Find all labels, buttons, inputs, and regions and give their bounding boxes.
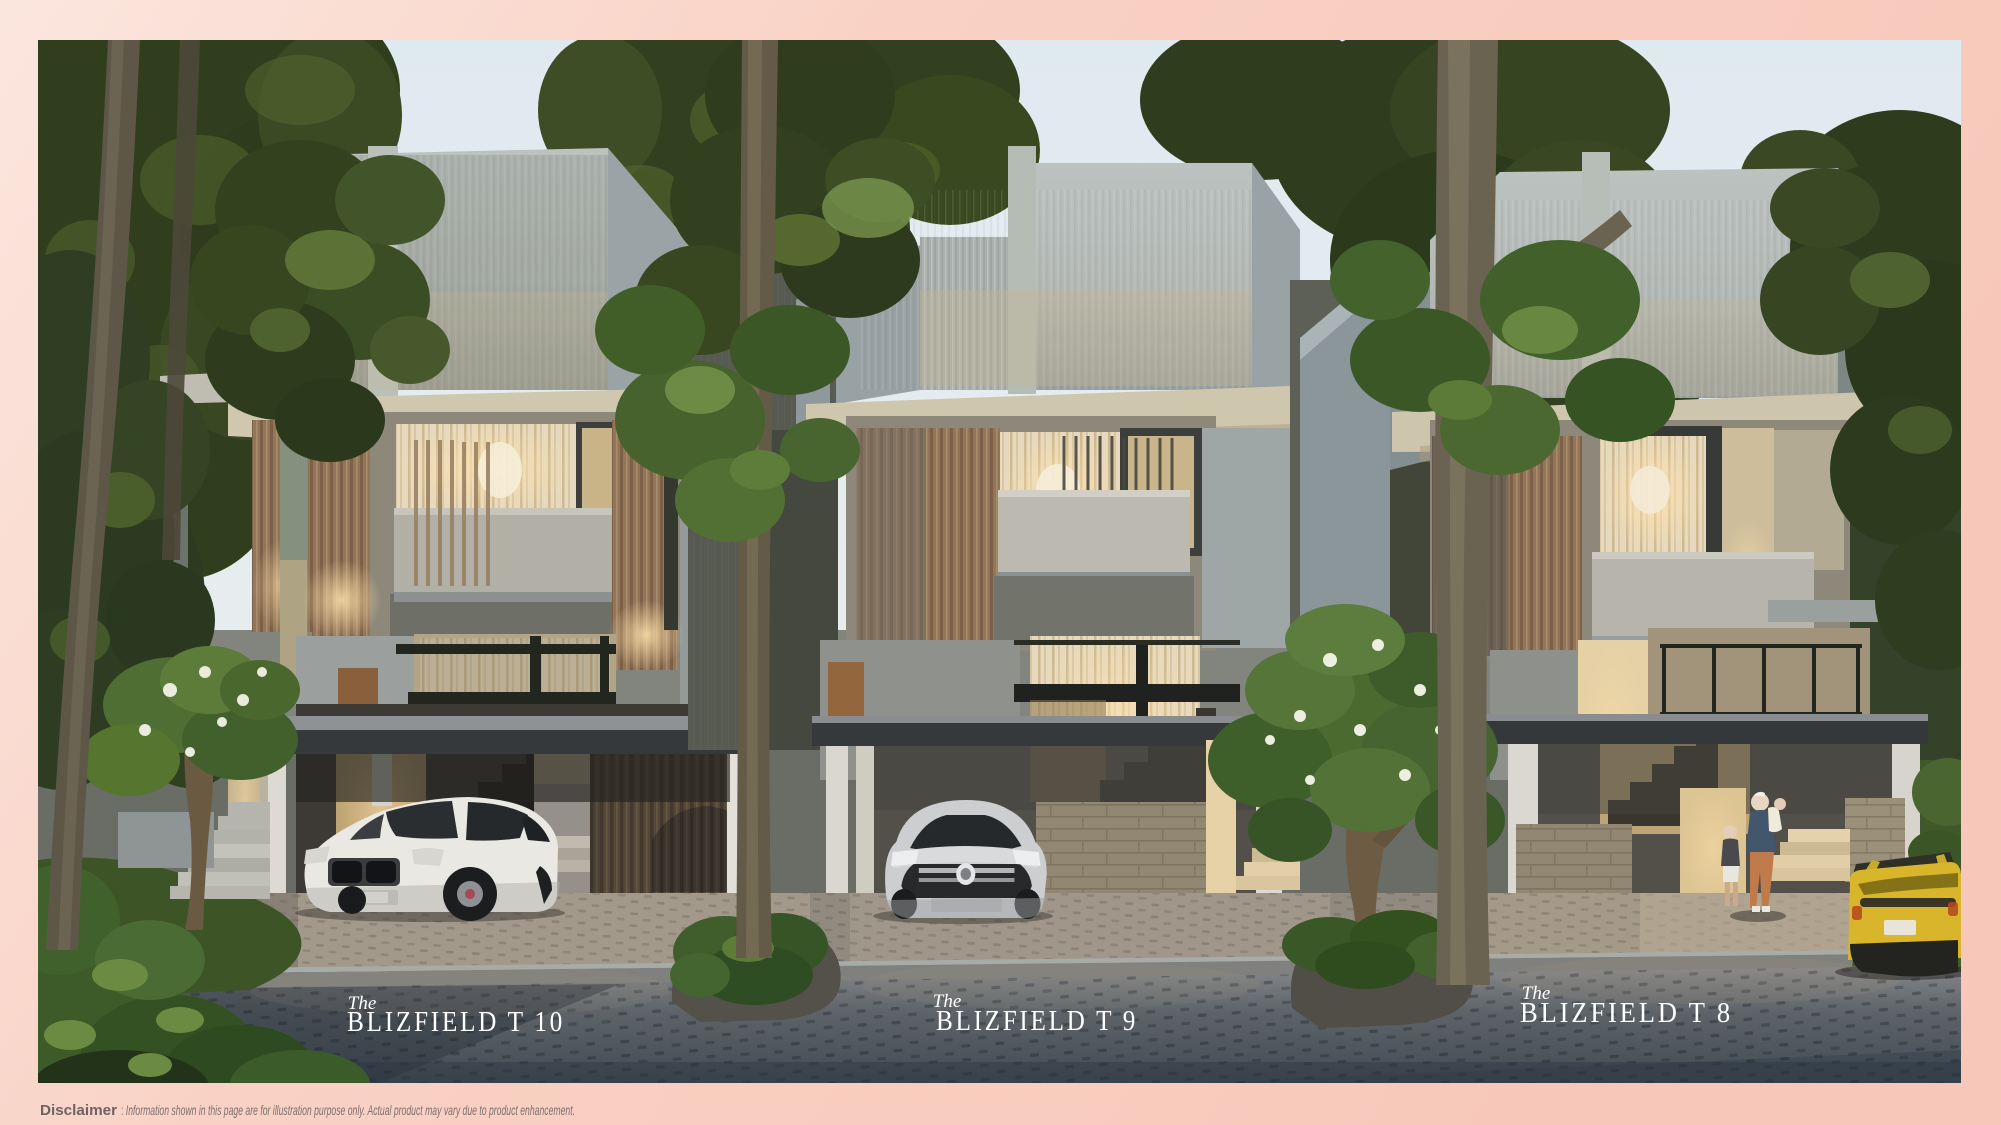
svg-text:Disclaimer: Disclaimer (40, 1102, 117, 1119)
svg-text:BLIZFIELD T 10: BLIZFIELD T 10 (347, 1007, 565, 1038)
svg-text:BLIZFIELD T 8: BLIZFIELD T 8 (1520, 998, 1733, 1029)
svg-text:BLIZFIELD T 9: BLIZFIELD T 9 (936, 1006, 1138, 1037)
svg-text:: Information shown in this pa: : Information shown in this page are for… (121, 1102, 575, 1118)
